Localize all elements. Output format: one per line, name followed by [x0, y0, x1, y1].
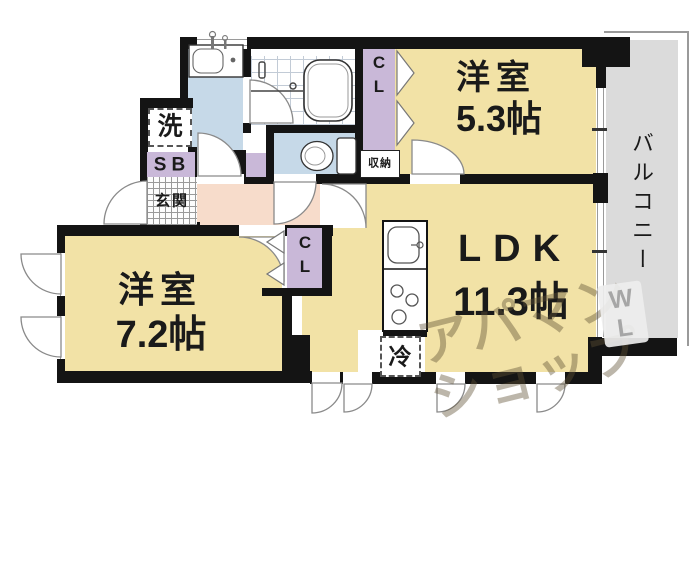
bedroom1-size: 5.3帖 — [456, 101, 542, 137]
balcony-label: バルコニー — [630, 132, 652, 277]
bathroom-tile — [251, 56, 355, 125]
window-line — [197, 45, 247, 46]
wall-segment — [596, 67, 606, 89]
entrance-label: 玄関 — [155, 194, 189, 209]
window-swing-arc — [21, 254, 61, 294]
window-tick — [592, 250, 607, 253]
toilet-doorway — [274, 174, 316, 184]
wall-segment — [582, 37, 630, 67]
window-swing-arc — [437, 384, 465, 412]
window-line — [597, 203, 598, 337]
washroom-doorway — [197, 174, 244, 184]
washroom-floor — [188, 49, 243, 150]
bedroom1-doorway — [410, 174, 460, 184]
wall-segment — [262, 288, 332, 296]
shoe-box-label: SB — [154, 156, 190, 175]
window-swing-arc — [312, 383, 342, 413]
window-line — [197, 39, 247, 40]
hall-ldk-doorway — [320, 184, 366, 228]
window-west-2 — [57, 316, 65, 359]
closet-upper-label: CL — [371, 53, 388, 101]
bedroom2-name: 洋室 — [118, 272, 202, 308]
storage-label: 収納 — [368, 159, 392, 170]
window-west-1 — [57, 253, 65, 296]
closet-lower-label: CL — [297, 233, 314, 281]
laundry-label: 洗 — [157, 115, 182, 140]
wall-segment — [180, 37, 188, 103]
ldk-name: LDK — [458, 230, 572, 268]
wall-segment — [266, 133, 274, 184]
window-line — [603, 203, 604, 337]
wall-segment — [282, 335, 310, 371]
pipe-space-box — [246, 153, 266, 177]
wall-segment — [143, 98, 193, 108]
window-swing-arc — [344, 384, 372, 412]
wall-segment — [593, 173, 608, 203]
window-swing-arc — [537, 384, 565, 412]
bathroom-doorway — [243, 77, 251, 123]
wall-segment — [266, 125, 358, 133]
toilet-floor — [274, 133, 358, 177]
ldk-size: 11.3帖 — [453, 282, 569, 322]
wall-segment — [588, 338, 677, 356]
refrigerator-label: 冷 — [389, 346, 412, 369]
window-south — [436, 372, 465, 384]
hallway-floor — [197, 177, 320, 228]
balcony-rail-top — [604, 31, 689, 33]
bedroom1-name: 洋室 — [456, 61, 536, 95]
window-south — [536, 372, 565, 384]
bedroom2-size: 7.2帖 — [116, 316, 207, 354]
balcony-rail-right — [687, 31, 689, 346]
window-tick — [592, 128, 607, 131]
floor-plan: 洋室 5.3帖 LDK 11.3帖 洋室 7.2帖 バルコニー 玄関 洗 SB … — [0, 0, 690, 575]
window-south — [343, 372, 372, 384]
window-swing-arc — [21, 317, 61, 357]
window-line — [60, 253, 61, 296]
window-line — [60, 316, 61, 359]
window-south — [312, 372, 340, 384]
wall-segment — [322, 225, 332, 296]
bedroom2-doorway — [239, 225, 285, 236]
wall-segment — [57, 371, 312, 383]
